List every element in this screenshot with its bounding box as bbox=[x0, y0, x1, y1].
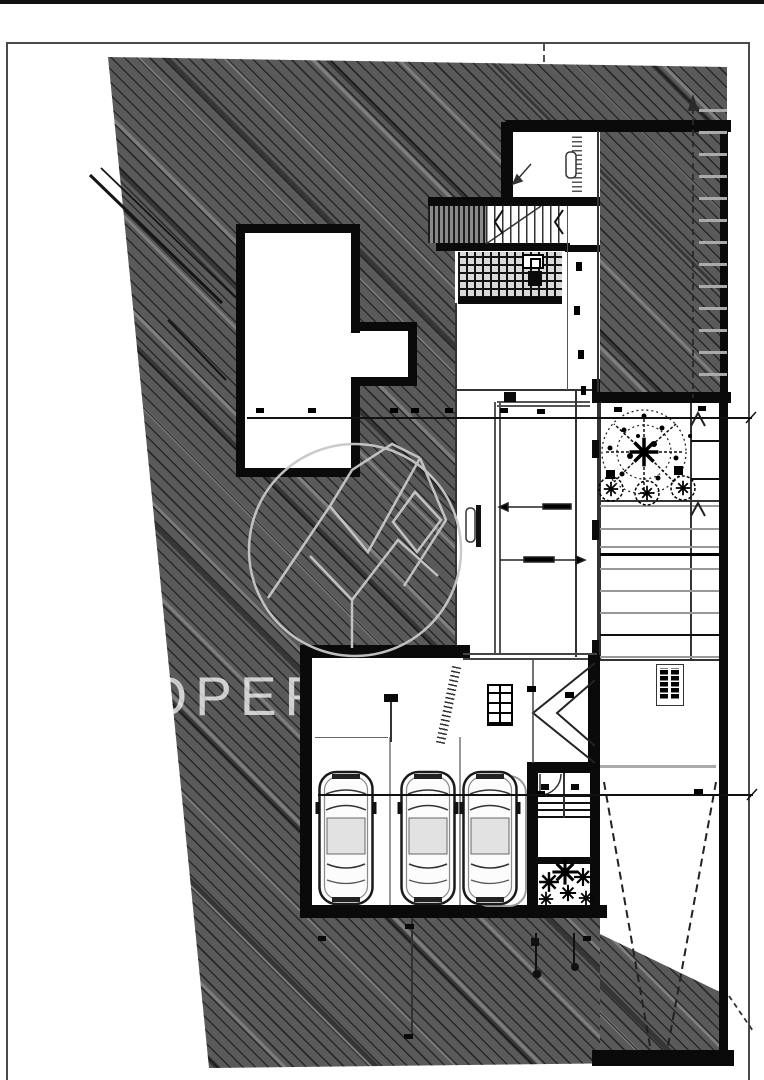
corridor-arrow-2 bbox=[500, 556, 585, 564]
section-end-ticks bbox=[746, 412, 757, 800]
detail-layer bbox=[0, 0, 764, 1080]
ramp-slope-arrows bbox=[604, 782, 716, 1046]
car-1 bbox=[316, 772, 377, 904]
garage-door-chevrons bbox=[533, 660, 595, 763]
entry-fixture bbox=[566, 152, 576, 178]
site-plant-marks bbox=[532, 933, 578, 978]
entry-door-arrow bbox=[513, 164, 531, 184]
corridor-arrow-1 bbox=[499, 503, 571, 511]
setback-arrow-line bbox=[689, 97, 697, 398]
garage-door-ticks bbox=[527, 686, 574, 698]
car-3 bbox=[460, 772, 521, 904]
dimension-ticks-row1 bbox=[256, 406, 706, 414]
section-line-2 bbox=[318, 794, 753, 796]
section-line-1 bbox=[247, 417, 752, 419]
floor-plan-sheet: PROPERTY bbox=[0, 0, 764, 1080]
vestibule-plants bbox=[539, 859, 593, 906]
strip-up-chevrons bbox=[691, 413, 705, 516]
car-2 bbox=[398, 772, 459, 904]
hatch-emphasis-lines bbox=[90, 168, 236, 380]
boundary-dash bbox=[729, 996, 753, 1031]
corridor-hinge-marks bbox=[574, 262, 586, 395]
stair-break-line bbox=[486, 206, 541, 244]
corridor-handle-fixture bbox=[466, 505, 481, 547]
